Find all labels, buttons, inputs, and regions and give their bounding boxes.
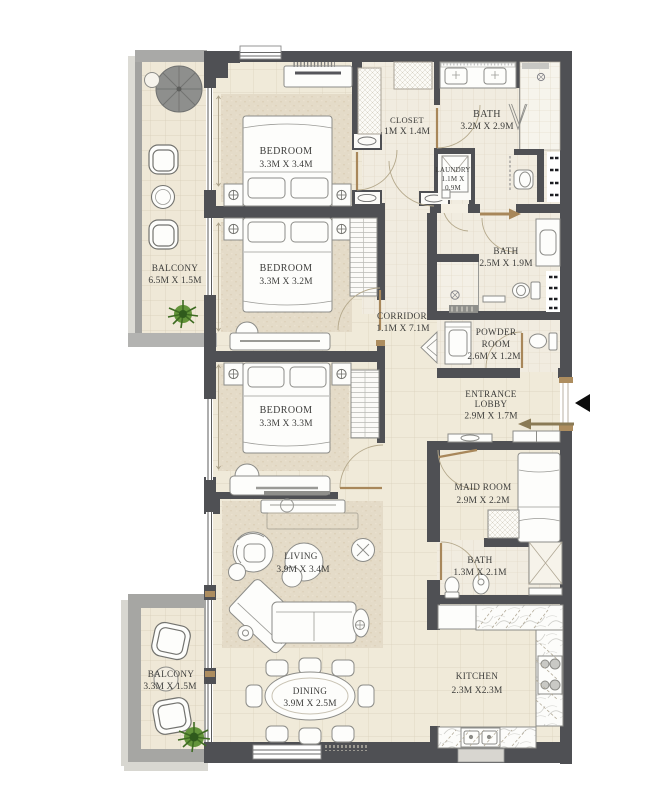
svg-text:BATH: BATH <box>467 555 492 565</box>
svg-text:2.6M X 1.2M: 2.6M X 1.2M <box>467 352 521 362</box>
svg-text:BEDROOM: BEDROOM <box>260 263 313 274</box>
svg-text:2.5M X 1.9M: 2.5M X 1.9M <box>479 259 533 269</box>
svg-text:3.2M X 2.9M: 3.2M X 2.9M <box>460 122 514 132</box>
svg-text:BALCONY: BALCONY <box>152 263 199 273</box>
svg-text:DINING: DINING <box>293 686 328 696</box>
svg-text:3.3M X 3.4M: 3.3M X 3.4M <box>259 160 313 170</box>
svg-text:LOBBY: LOBBY <box>475 399 508 409</box>
svg-text:POWDER: POWDER <box>476 327 517 337</box>
svg-text:2.9M X 2.2M: 2.9M X 2.2M <box>456 496 510 506</box>
svg-text:LAUNDRY: LAUNDRY <box>435 166 470 174</box>
svg-text:BEDROOM: BEDROOM <box>260 146 313 157</box>
svg-text:CLOSET: CLOSET <box>390 115 424 125</box>
svg-text:2.9M X 1.7M: 2.9M X 1.7M <box>464 412 518 422</box>
svg-text:3.9M X 2.5M: 3.9M X 2.5M <box>283 699 337 709</box>
svg-text:3.9M X 3.4M: 3.9M X 3.4M <box>276 565 330 575</box>
svg-text:CORRIDOR: CORRIDOR <box>377 311 427 321</box>
svg-text:1.3M X 2.1M: 1.3M X 2.1M <box>453 568 507 578</box>
svg-text:MAID ROOM: MAID ROOM <box>454 482 511 492</box>
svg-text:3.3M X 1.5M: 3.3M X 1.5M <box>143 682 197 692</box>
svg-text:BALCONY: BALCONY <box>148 669 195 679</box>
svg-text:3.3M X 3.2M: 3.3M X 3.2M <box>259 277 313 287</box>
svg-text:ENTRANCE: ENTRANCE <box>465 389 516 399</box>
svg-text:2.3M X2.3M: 2.3M X2.3M <box>452 686 503 696</box>
svg-text:1.1M X: 1.1M X <box>442 175 465 183</box>
svg-text:BATH: BATH <box>473 109 501 120</box>
svg-text:6.5M X 1.5M: 6.5M X 1.5M <box>148 276 202 286</box>
svg-text:BEDROOM: BEDROOM <box>260 405 313 416</box>
svg-text:1.1M X 7.1M: 1.1M X 7.1M <box>376 324 430 334</box>
svg-text:BATH: BATH <box>493 246 518 256</box>
svg-text:1M X 1.4M: 1M X 1.4M <box>384 127 430 137</box>
svg-text:0.9M: 0.9M <box>445 184 461 192</box>
svg-text:KITCHEN: KITCHEN <box>456 671 498 681</box>
svg-text:LIVING: LIVING <box>284 551 318 561</box>
svg-text:ROOM: ROOM <box>482 339 511 349</box>
svg-text:3.3M X 3.3M: 3.3M X 3.3M <box>259 419 313 429</box>
